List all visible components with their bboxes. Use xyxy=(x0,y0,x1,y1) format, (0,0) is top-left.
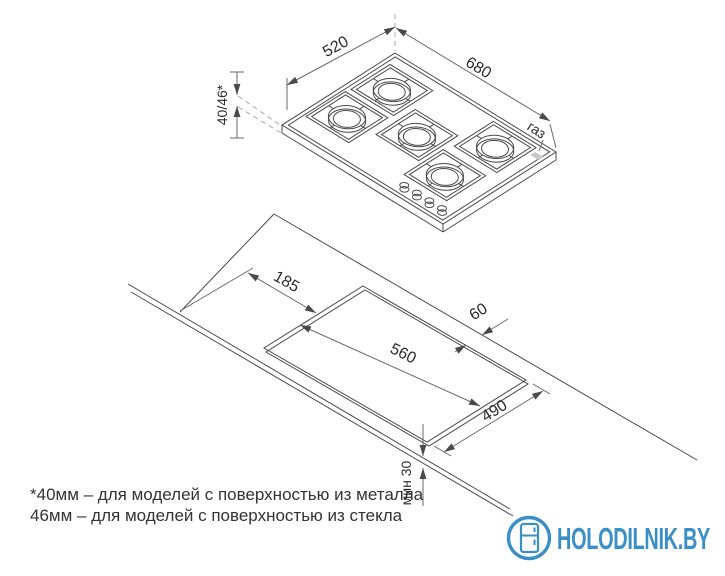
hob-outline xyxy=(282,53,556,224)
dimension-height: 40/46* xyxy=(214,72,283,138)
dim-520-label: 520 xyxy=(320,33,352,61)
footnote: *40мм – для моделей с поверхностью из ме… xyxy=(30,485,424,525)
dimension-60: 60 xyxy=(455,300,508,352)
dimension-560: 560 xyxy=(300,325,480,406)
dimension-185: 185 xyxy=(180,268,363,327)
dim-560-label: 560 xyxy=(387,340,419,367)
dim-185-label: 185 xyxy=(270,268,302,296)
hob-isometric-view: 520 680 40/46* газ xyxy=(214,14,556,232)
installation-diagram: 520 680 40/46* газ xyxy=(0,0,725,576)
dim-490-label: 490 xyxy=(479,397,511,426)
footnote-line-1: *40мм – для моделей с поверхностью из ме… xyxy=(30,485,424,504)
footnote-line-2: 46мм – для моделей с поверхностью из сте… xyxy=(30,506,403,525)
fridge-icon xyxy=(521,524,538,552)
dimension-490: 490 xyxy=(434,384,550,456)
diagram-svg: 520 680 40/46* газ xyxy=(0,0,725,576)
dim-height-label: 40/46* xyxy=(214,84,230,125)
dimension-520: 520 xyxy=(287,14,395,110)
dim-60-label: 60 xyxy=(467,300,491,324)
burner xyxy=(404,150,486,201)
holodilnik-logo: HOLODILNIK.BY xyxy=(509,518,711,559)
gas-inlet xyxy=(530,152,543,160)
burner xyxy=(376,110,458,161)
logo-text: HOLODILNIK.BY xyxy=(557,521,711,556)
burner xyxy=(454,121,536,172)
countertop-cutout-view: 185 60 560 490 мин 30 xyxy=(128,214,697,516)
